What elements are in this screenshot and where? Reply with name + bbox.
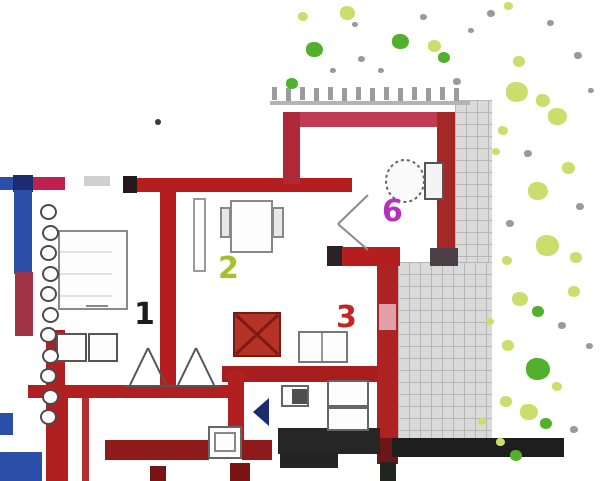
stairs-lines	[130, 348, 148, 385]
railing-post	[440, 87, 445, 100]
blue-mark-left	[0, 413, 13, 435]
plant-blob	[286, 78, 298, 89]
toilet-tank	[424, 162, 444, 200]
plant-dot	[588, 88, 594, 93]
railing-post	[272, 87, 277, 100]
plant-dot	[468, 28, 474, 33]
plant-dot	[574, 52, 582, 59]
wall-main-cap-black	[123, 176, 137, 193]
plant-blob	[428, 40, 441, 52]
stove	[233, 312, 281, 357]
plant-blob	[502, 256, 512, 265]
dot-artifact	[155, 119, 161, 125]
plant-dot	[547, 20, 554, 26]
plant-blob	[486, 318, 494, 325]
plant-blob	[512, 292, 528, 306]
plant-dot	[352, 22, 358, 27]
plant-blob	[520, 404, 538, 420]
band-black-center-ext	[280, 452, 338, 468]
railing-post	[328, 87, 333, 100]
plant-dot	[358, 56, 365, 62]
railing-line	[270, 101, 470, 105]
plant-blob	[392, 34, 409, 49]
plant-blob	[478, 418, 486, 425]
plant-blob	[552, 382, 562, 391]
railing-post	[412, 87, 417, 100]
blue-rect-bottom-left	[0, 452, 42, 481]
railing-post	[370, 88, 375, 101]
radiator-segment	[40, 286, 57, 302]
wall-left-red-line	[82, 397, 89, 481]
band-red-bottom-b	[242, 440, 272, 460]
plant-dot	[420, 14, 427, 20]
chair-left	[220, 207, 231, 238]
plant-blob	[532, 306, 544, 317]
mark-dark-red-a	[150, 466, 166, 481]
room-label-1: 1	[134, 300, 155, 330]
cabinet-a	[56, 333, 87, 362]
wall-bath-left	[283, 112, 300, 184]
radiator-segment	[42, 225, 59, 241]
plant-blob	[528, 182, 548, 200]
undefined	[398, 262, 492, 442]
radiator-segment	[40, 204, 57, 220]
plant-blob	[504, 2, 513, 10]
railing-post	[454, 88, 459, 101]
wall-left-blue-v	[14, 190, 32, 274]
plant-blob	[506, 82, 528, 102]
plant-blob	[570, 252, 582, 263]
floorplan-canvas: 1236	[0, 0, 600, 481]
band-red-bottom-a	[105, 440, 209, 460]
table	[230, 200, 273, 253]
plant-blob	[340, 6, 355, 20]
chair-right	[272, 207, 284, 238]
railing-post	[426, 88, 431, 101]
railing-post	[398, 88, 403, 101]
plant-blob	[536, 235, 559, 256]
wall-left-blue-h	[0, 177, 14, 190]
wall-bath-top	[283, 112, 455, 127]
wall-L-cap-black	[327, 246, 343, 266]
mark-dark-red-b	[230, 463, 250, 481]
radiator-segment	[42, 307, 59, 323]
undefined	[455, 100, 492, 263]
radiator-segment	[42, 389, 59, 405]
plant-dot	[586, 343, 593, 349]
plant-blob	[562, 162, 575, 174]
plant-blob	[510, 450, 522, 461]
wc-sink-bowl	[292, 389, 307, 404]
plant-dot	[558, 322, 566, 329]
plant-blob	[526, 358, 550, 380]
plant-blob	[536, 94, 550, 107]
railing-post	[342, 88, 347, 101]
plant-dot	[524, 150, 532, 157]
plant-blob	[438, 52, 450, 63]
room-label-2: 2	[218, 254, 239, 284]
wall-main-red-h	[137, 178, 352, 192]
railing-post	[356, 87, 361, 100]
shower	[327, 380, 369, 407]
stairs-lines	[178, 348, 196, 385]
door-leaf	[193, 198, 206, 272]
plant-dot	[570, 426, 578, 433]
railing-post	[300, 87, 305, 100]
plant-blob	[568, 286, 580, 297]
plant-dot	[453, 78, 461, 85]
door-arrow	[253, 398, 269, 426]
plant-blob	[496, 438, 505, 446]
plant-blob	[500, 396, 512, 407]
bed	[58, 230, 128, 310]
band-black-terrace	[392, 438, 564, 457]
plant-blob	[502, 340, 514, 351]
plant-blob	[513, 56, 525, 67]
washer	[327, 407, 369, 431]
wall-bath-right-cap	[430, 248, 458, 266]
window-right-v	[379, 304, 396, 330]
cabinet-b	[88, 333, 118, 362]
plant-blob	[540, 418, 552, 429]
plant-blob	[492, 148, 500, 155]
wall-right-red-v	[377, 264, 398, 442]
wall-left-red-v-upper	[15, 272, 33, 336]
railing-post	[286, 88, 291, 101]
gray-dash	[84, 176, 110, 186]
radiator-segment	[42, 348, 59, 364]
radiator-segment	[40, 409, 57, 425]
bottom-fixture-inner	[214, 432, 236, 452]
plant-blob	[306, 42, 323, 57]
plant-dot	[378, 68, 384, 73]
stairs-lines	[196, 348, 214, 385]
plant-dot	[330, 68, 336, 73]
plant-dot	[506, 220, 514, 227]
wall-left-crimson-h	[33, 177, 65, 190]
radiator-segment	[40, 368, 57, 384]
kitchen-counter	[298, 331, 348, 363]
radiator-segment	[40, 327, 57, 343]
door-swing-lines	[338, 195, 368, 224]
plant-blob	[498, 126, 508, 135]
railing-post	[314, 88, 319, 101]
plant-dot	[576, 203, 584, 210]
room-label-3: 3	[336, 303, 357, 333]
band-black-center	[278, 428, 380, 454]
radiator-segment	[40, 245, 57, 261]
plant-dot	[487, 10, 495, 17]
railing-post	[384, 87, 389, 100]
room-label-6: 6	[382, 197, 403, 227]
wall-mid-red-v	[160, 192, 176, 390]
plant-blob	[548, 108, 567, 125]
plant-blob	[298, 12, 308, 21]
radiator-segment	[42, 266, 59, 282]
wall-right-black-end	[380, 462, 396, 481]
